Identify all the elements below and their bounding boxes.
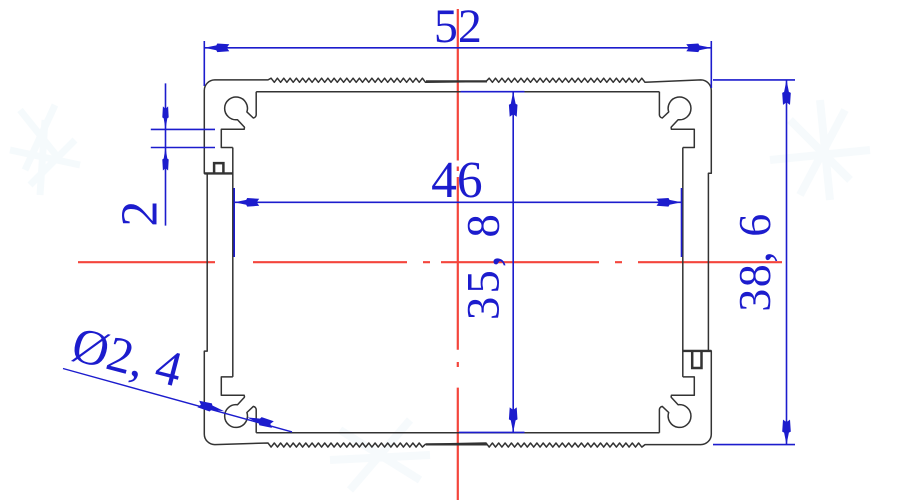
svg-text:52: 52	[434, 0, 482, 53]
svg-text:35, 8: 35, 8	[458, 211, 510, 320]
svg-text:38, 6: 38, 6	[729, 212, 780, 312]
svg-text:46: 46	[431, 152, 483, 209]
svg-text:2: 2	[112, 201, 169, 227]
